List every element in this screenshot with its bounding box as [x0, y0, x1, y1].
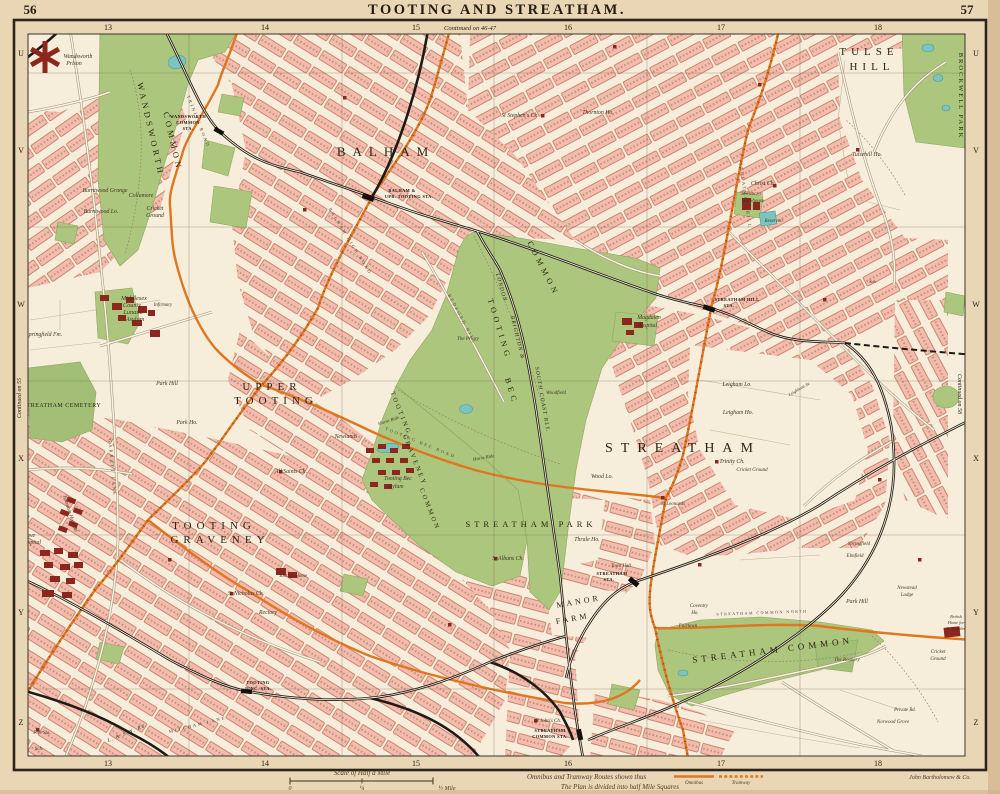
map-label: Wandsworth — [64, 54, 93, 60]
continued-left-note: Continued on 55 — [17, 378, 23, 418]
legend-omnibus-label: Omnibus — [685, 781, 703, 786]
map-label: STREATHAM HILL — [715, 297, 760, 302]
map-label: County — [123, 302, 141, 309]
map-label: St Pancras — [741, 192, 763, 197]
map-label: BALHAM — [337, 144, 435, 159]
map-label: UPPER — [242, 381, 301, 393]
map-label: WANDSWORTH — [170, 114, 207, 119]
grid-column-label: 13 — [104, 759, 112, 768]
legend-plan-text: The Plan is divided into half Mile Squar… — [561, 783, 679, 791]
map-label: GRAVENEY — [170, 534, 269, 546]
map-label: Infirmary — [153, 303, 173, 308]
page-number-right: 57 — [961, 2, 975, 17]
map-label: Park Hill — [155, 381, 178, 387]
map-label: Collamore — [129, 193, 154, 199]
map-label: Leigham Ho. — [722, 410, 753, 416]
map-label: Home for — [947, 620, 965, 625]
grid-row-label: Y — [973, 608, 979, 617]
map-label: Christ Ch. — [751, 181, 775, 187]
map-label: Private Rd. — [893, 708, 916, 713]
map-sheet-page: 56 TOOTING AND STREATHAM. 57 — [0, 0, 1000, 794]
map-label: St Leonards — [661, 502, 685, 507]
map-label: St Nicholas Ch. — [228, 591, 264, 597]
map-label: Cricket — [146, 206, 163, 212]
grid-column-label: 15 — [412, 23, 420, 32]
streatham-cemetery-green — [28, 362, 96, 442]
grid-row-label: X — [18, 454, 24, 463]
map-label: Prison — [65, 61, 82, 67]
map-label: Coventry — [690, 604, 709, 609]
map-label: Tooting Bec — [384, 476, 412, 482]
continued-right-note: Continued on 58 — [956, 374, 962, 414]
map-label: St Albans Ch. — [492, 556, 524, 562]
legend-routes-text: Omnibus and Tramway Routes shown thus — [527, 773, 646, 781]
map-content: BALHAMUPPERTOOTINGTOOTINGGRAVENEYSTREATH… — [14, 30, 986, 758]
map-label: Springfield — [848, 542, 871, 547]
map-label: TOOTING — [234, 395, 318, 407]
scale-zero: 0 — [289, 786, 292, 792]
map-label: Cricket — [931, 650, 946, 655]
map-label: Tulsehill Ho. — [852, 152, 882, 158]
map-label: St John's Ch. — [535, 719, 561, 724]
map-label: Asylum — [385, 484, 403, 490]
map-label: Workhouse — [742, 199, 765, 204]
map-label: STA. — [724, 303, 735, 308]
map-label: TULSE — [839, 46, 898, 58]
continued-top-note: Continued on 46-47 — [444, 25, 497, 32]
map-label: Newstead — [896, 586, 917, 591]
map-label: Newlands — [334, 434, 359, 440]
legend-tramway-label: Tramway — [732, 781, 751, 786]
map-label: STREATHAM CEMETERY — [23, 403, 102, 409]
map-label: Rectory — [258, 610, 277, 616]
map-label: Park Hill — [845, 599, 868, 605]
grid-column-label: 15 — [412, 759, 420, 768]
page-bottom-shade — [0, 790, 1000, 794]
map-label: Thrale Ho. — [574, 537, 599, 543]
grid-column-label: 18 — [874, 23, 882, 32]
map-label: Incurables — [946, 626, 966, 631]
map-label: Town Hall — [611, 564, 632, 569]
map-label: Reservoir — [764, 219, 784, 224]
map-label: Magdalen — [636, 315, 661, 321]
map-label: Asylum — [125, 316, 145, 323]
map-sheet-svg: 56 TOOTING AND STREATHAM. 57 — [0, 0, 1000, 794]
map-label: STREATHAM PARK — [465, 519, 596, 529]
grid-row-label: Y — [18, 608, 24, 617]
map-label: STA. — [604, 577, 615, 582]
grid-row-label: Z — [19, 718, 24, 727]
map-label: Elmfield — [846, 554, 864, 559]
grid-row-label: U — [18, 49, 24, 58]
map-label: Cricket Ground — [736, 468, 768, 473]
map-label: Ground — [930, 657, 946, 662]
scale-title: Scale of Half a Mile — [334, 769, 390, 777]
page-number-left: 56 — [24, 2, 38, 17]
map-label: Park Ho. — [175, 420, 197, 426]
map-label: The Rookery — [834, 658, 860, 663]
scale-half: ½ Mile — [439, 785, 456, 792]
map-label: Trinity Ch. — [719, 459, 744, 465]
map-label: COMMON STA. — [532, 734, 568, 739]
map-label: Woodfield — [546, 391, 567, 396]
map-label: Middlesex — [120, 295, 147, 302]
map-label: Fairlawn — [678, 624, 698, 629]
map-label: Leigham Lo. — [721, 382, 751, 388]
map-label: STREATHAM — [535, 728, 566, 733]
map-label: Ground — [146, 213, 164, 219]
map-label: Tooting Home — [279, 574, 308, 579]
map-label: British — [950, 614, 962, 619]
map-label: TOOTING — [172, 520, 256, 532]
grid-row-label: U — [973, 49, 979, 58]
map-label: STREATHAM — [597, 571, 628, 576]
map-label: Lunatic — [122, 309, 142, 316]
grid-column-label: 14 — [261, 23, 269, 32]
map-label: Ho. — [690, 611, 698, 616]
page-title: TOOTING AND STREATHAM. — [368, 2, 626, 18]
map-label: HILL — [849, 61, 894, 73]
map-label: STREATHAM — [605, 441, 761, 456]
grid-column-label: 13 — [104, 23, 112, 32]
map-label: UPR. TOOTING STA. — [385, 194, 433, 199]
grid-row-label: W — [972, 300, 980, 309]
page-edge-shade — [988, 0, 1000, 794]
scale-quarter: ¼ — [360, 786, 365, 792]
map-label: Norwood Grove — [876, 720, 910, 725]
map-label: Burntwood Lo. — [84, 209, 119, 215]
grid-row-label: V — [18, 146, 24, 155]
map-label: Lodge — [900, 593, 914, 598]
map-label: Fire Sta. — [32, 731, 50, 736]
grid-column-label: 16 — [564, 759, 572, 768]
publisher-credit: John Bartholomew & Co. — [909, 775, 971, 781]
map-label: JUNC. STA. — [245, 686, 272, 691]
grid-row-label: V — [973, 146, 979, 155]
map-label: Springfield Fm. — [26, 331, 62, 338]
map-label: Sch. — [35, 747, 43, 752]
map-label: St Stephen's Ch. — [501, 113, 538, 119]
map-label: STA. — [183, 126, 194, 131]
grid-column-label: 18 — [874, 759, 882, 768]
map-label: BALHAM & — [388, 188, 415, 193]
map-label: Wood Lo. — [591, 474, 613, 480]
grid-row-label: Z — [974, 718, 979, 727]
map-label: Thornton Ho. — [582, 110, 614, 116]
map-label: TOOTING — [246, 680, 270, 685]
map-label: BROCKWELL PARK — [957, 53, 964, 140]
map-label: All Saints Ch. — [274, 469, 307, 475]
grid-column-label: 14 — [261, 759, 269, 768]
map-label: The Priory — [457, 337, 480, 342]
grid-column-label: 17 — [717, 23, 725, 32]
grid-column-label: 16 — [564, 23, 572, 32]
map-label: Sch. — [869, 279, 877, 284]
map-label: Hospital — [636, 323, 657, 329]
map-label: Burntwood Grange — [83, 188, 128, 194]
grid-row-label: W — [17, 300, 25, 309]
grid-row-label: X — [973, 454, 979, 463]
grid-column-label: 17 — [717, 759, 725, 768]
